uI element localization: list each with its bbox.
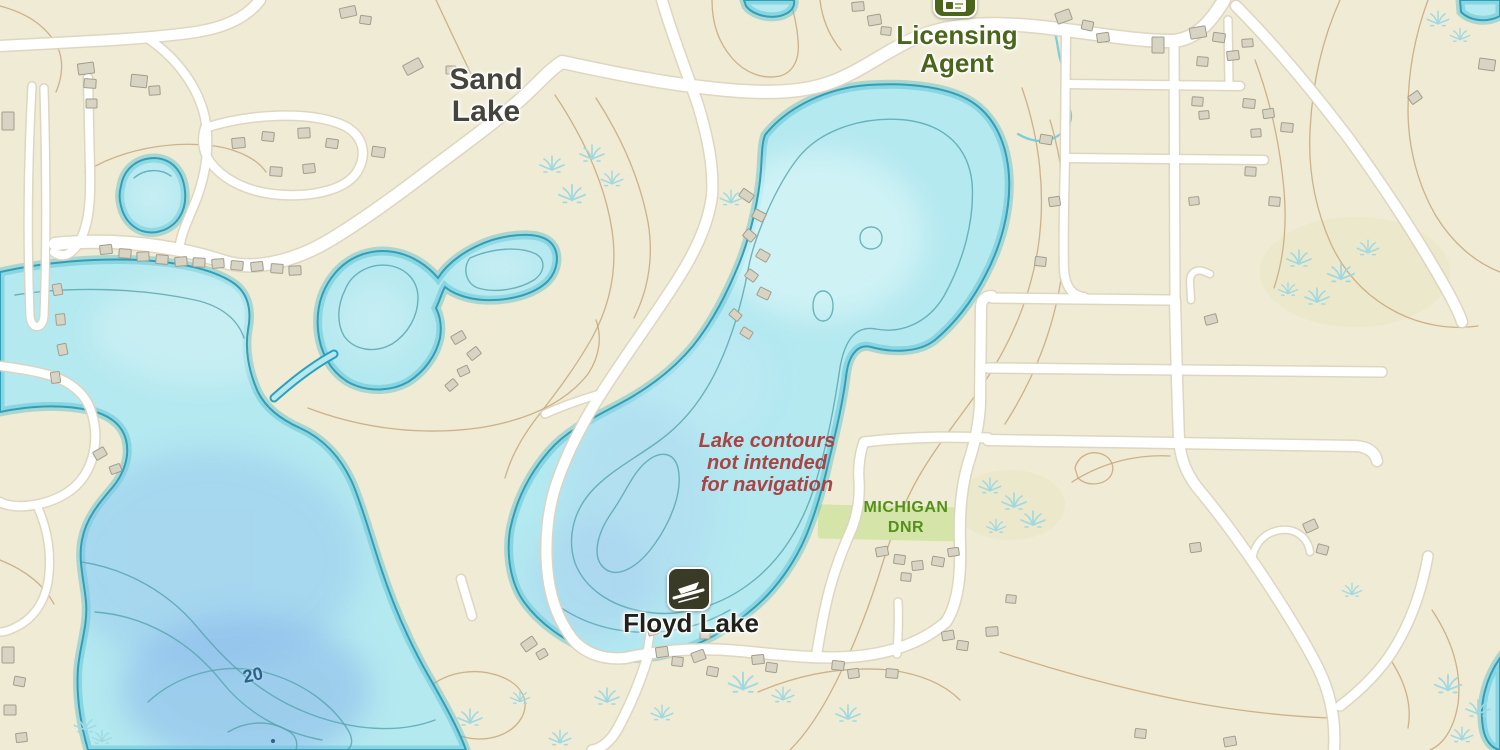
building [270,167,283,177]
building [1039,134,1052,145]
building [1135,728,1147,738]
building [289,266,301,276]
building [941,630,954,641]
building [1242,39,1254,48]
licensing-agent-marker[interactable] [933,0,977,18]
floyd-lake-label: Floyd Lake [623,609,759,637]
building [1035,256,1047,266]
depth-20-label: 20 [241,663,265,688]
building [232,137,246,148]
boat-launch-marker[interactable] [667,567,711,611]
deepest-point-dot [271,739,275,743]
road [1174,40,1175,298]
building [119,249,132,259]
building [2,112,14,130]
building [13,676,25,687]
building [1478,58,1495,71]
building [1245,167,1256,177]
building [325,138,338,149]
map-canvas[interactable]: Sand Lake Licensing Agent Lake contours … [0,0,1500,750]
building [57,343,68,356]
building [706,666,718,677]
building [1192,97,1204,107]
building [2,647,14,663]
building [886,668,899,678]
building [1096,32,1109,43]
building [1212,32,1225,43]
building [359,15,371,24]
building [1281,122,1294,132]
building [1227,50,1240,60]
sand-lake-label: Sand Lake [449,64,522,128]
building [672,656,684,666]
building [655,646,668,658]
building [1269,197,1281,207]
building [303,163,316,173]
building [84,79,97,89]
building [231,260,244,270]
building [156,254,169,264]
building [765,662,777,672]
depth-tint [129,170,177,222]
building [1189,542,1201,552]
lake-pond_ne [1460,0,1500,20]
building [130,74,147,88]
building [16,732,28,742]
building [149,86,161,96]
building [1189,196,1200,205]
building [1223,736,1236,747]
building [298,128,311,139]
michigan-dnr-label: MICHIGAN DNR [864,498,949,538]
building [867,14,882,26]
building [1197,57,1209,67]
building [947,547,959,556]
road [988,368,1382,372]
building [137,252,149,262]
building [912,560,924,570]
building [847,668,859,678]
depth-tint [462,250,538,286]
building [271,264,284,274]
building [77,62,94,75]
building [4,705,16,715]
building [931,556,944,567]
road [864,437,988,442]
building [50,371,60,383]
building [875,546,888,557]
building [1006,594,1017,603]
building [901,573,912,582]
building [193,258,205,268]
building [1152,37,1164,53]
building [832,660,845,670]
building [175,256,188,266]
building [262,131,275,141]
building [852,1,865,11]
building [1243,98,1256,108]
building [86,99,97,108]
building [1251,129,1262,138]
road [1066,84,1240,86]
building [1262,108,1274,118]
building [986,627,999,637]
boat-ramp-icon [669,569,708,608]
licensing-agent-label: Licensing Agent [896,21,1017,77]
license-icon [943,0,966,12]
land-patch [1260,217,1450,327]
building [956,640,968,650]
building [1199,111,1210,120]
building [371,146,385,158]
building [1081,20,1094,31]
building [251,261,264,271]
building [893,554,905,564]
building [52,283,63,295]
lake-contours-disclaimer: Lake contours not intended for navigatio… [699,430,836,496]
building [1048,196,1060,206]
building [212,259,225,269]
road [1066,158,1264,160]
building [881,26,892,35]
lake-pond_nc [744,0,794,17]
building [100,244,113,254]
road [897,602,898,654]
building [56,314,66,326]
building [1189,26,1207,40]
lake-pond_nw [120,158,186,232]
building [752,654,765,664]
depth-tint [335,280,415,360]
